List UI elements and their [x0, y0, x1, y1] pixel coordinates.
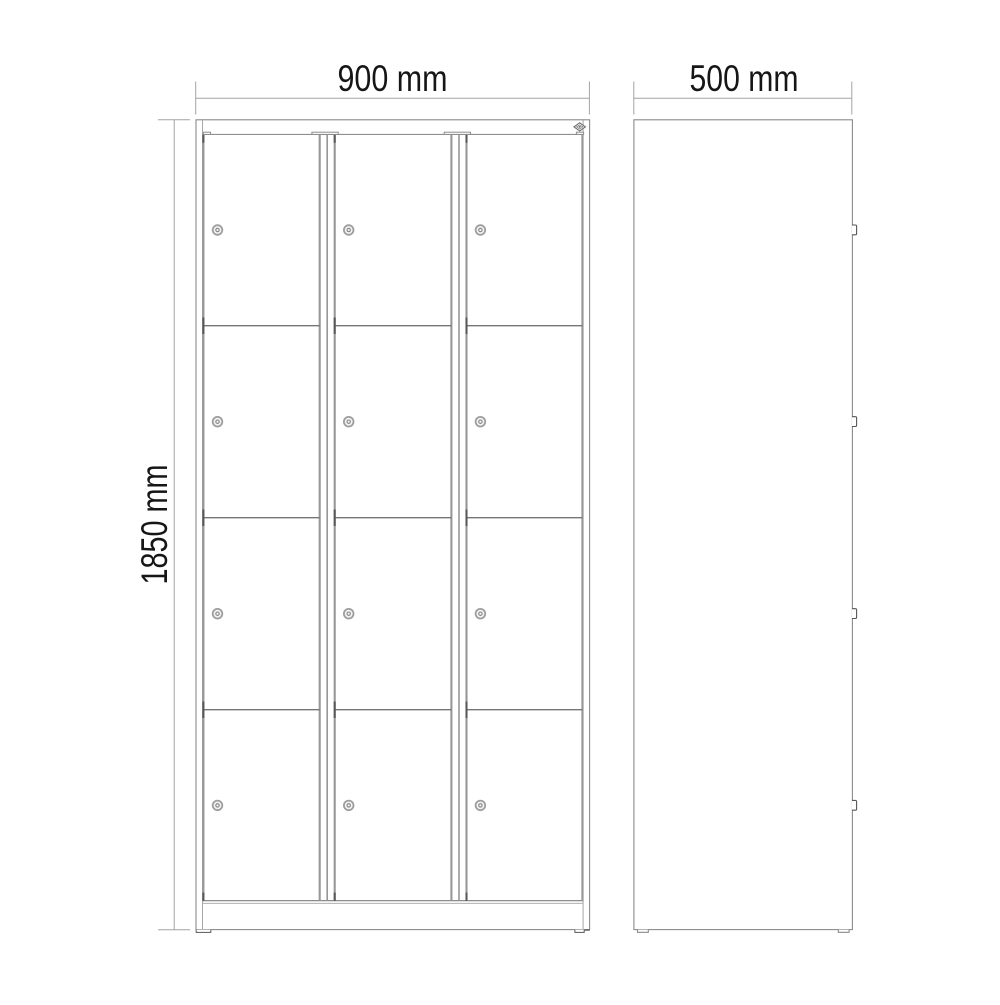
svg-text:900 mm: 900 mm — [338, 58, 448, 99]
svg-text:1850 mm: 1850 mm — [134, 465, 175, 585]
svg-text:500 mm: 500 mm — [690, 58, 799, 99]
